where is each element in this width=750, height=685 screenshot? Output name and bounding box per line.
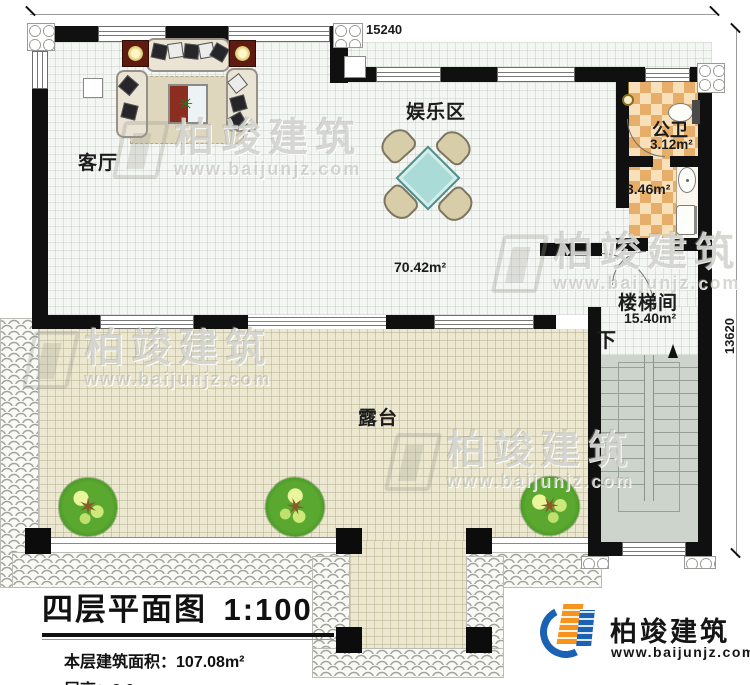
wall-left: [32, 89, 48, 315]
roof-tile-border-bottom: [12, 552, 602, 588]
lamp-icon: [235, 46, 250, 61]
plan-title: 四层平面图: [42, 592, 207, 627]
plant-icon: ✳: [178, 94, 193, 115]
corner-column-pad: [697, 63, 725, 93]
brand-logo: 柏竣建筑 www.baijunjz.com: [538, 596, 748, 676]
corner-column-pad: [684, 556, 716, 569]
dimension-line-right: [736, 30, 737, 556]
ceiling-lamp-icon: [622, 94, 634, 106]
dimension-top-label: 15240: [366, 22, 402, 37]
corner-column-pad: [333, 23, 363, 48]
window: [434, 315, 534, 329]
tree-icon: ✶: [59, 478, 117, 536]
stair-direction-label: 下: [596, 324, 616, 353]
window: [622, 542, 686, 556]
area-public-bath: 3.12m²: [650, 137, 693, 152]
room-label-terrace: 露台: [358, 403, 398, 430]
window: [376, 67, 441, 82]
title-block: 四层平面图 1:100 本层建筑面积：107.08m² 层高：3.0m: [42, 584, 372, 685]
dimension-line-top: [30, 14, 716, 15]
wall: [194, 315, 248, 329]
sink-drain: [686, 179, 689, 182]
floor-area-label: 本层建筑面积：: [64, 654, 176, 671]
title-underline-thin: [42, 639, 334, 640]
column: [25, 528, 51, 554]
bathroom-partition: [670, 156, 712, 167]
room-label-living: 客厅: [78, 148, 118, 175]
window: [497, 67, 575, 82]
stair-direction-arrow: [668, 344, 678, 358]
wall: [48, 26, 98, 42]
stairwell-wall-bottom: [588, 542, 622, 556]
bathroom-wall-bottom: [616, 238, 648, 251]
floor-area-value: 107.08m²: [176, 654, 245, 671]
sliding-door: [248, 317, 386, 326]
stairwell-wall-bottom: [686, 542, 712, 556]
area-stairwell: 15.40m²: [624, 310, 676, 326]
title-underline: [42, 633, 334, 637]
bathroom-partition: [629, 156, 653, 167]
wall: [386, 315, 434, 329]
lamp-icon: [128, 46, 143, 61]
window: [32, 51, 48, 89]
toilet-tank: [692, 100, 700, 124]
wall-niche: [83, 78, 103, 98]
plan-scale: 1:100: [223, 592, 312, 627]
wall: [575, 67, 645, 82]
floor-plan-canvas: ✳ ✶ ✶ ✶ 柏竣建筑 www.baijunjz.com 柏竣建筑 www.b…: [0, 0, 750, 685]
wall: [441, 67, 497, 82]
window: [645, 68, 690, 82]
corner-column-pad: [27, 23, 55, 51]
wall-niche: [344, 56, 366, 78]
room-label-entertainment: 娱乐区: [406, 97, 466, 124]
dimension-right-label: 13620: [722, 318, 737, 354]
wall: [32, 315, 100, 329]
corner-column-pad: [581, 556, 609, 569]
stair-inner-outline: [618, 362, 680, 512]
washer-panel: [694, 206, 697, 234]
area-open-space: 70.42m²: [394, 259, 446, 275]
pillow: [151, 43, 169, 61]
brand-url: www.baijunjz.com: [611, 644, 750, 660]
pillow: [167, 42, 184, 59]
brand-logo-building-blue: [576, 610, 595, 646]
column: [336, 528, 362, 554]
hall-wall-stub: [540, 243, 602, 256]
wall: [534, 315, 556, 329]
bathroom-wall-bottom: [674, 238, 712, 251]
area-bath-anteroom: 3.46m²: [626, 181, 670, 197]
column: [466, 627, 492, 653]
wall-right: [698, 67, 712, 556]
window: [100, 315, 194, 329]
column: [466, 528, 492, 554]
